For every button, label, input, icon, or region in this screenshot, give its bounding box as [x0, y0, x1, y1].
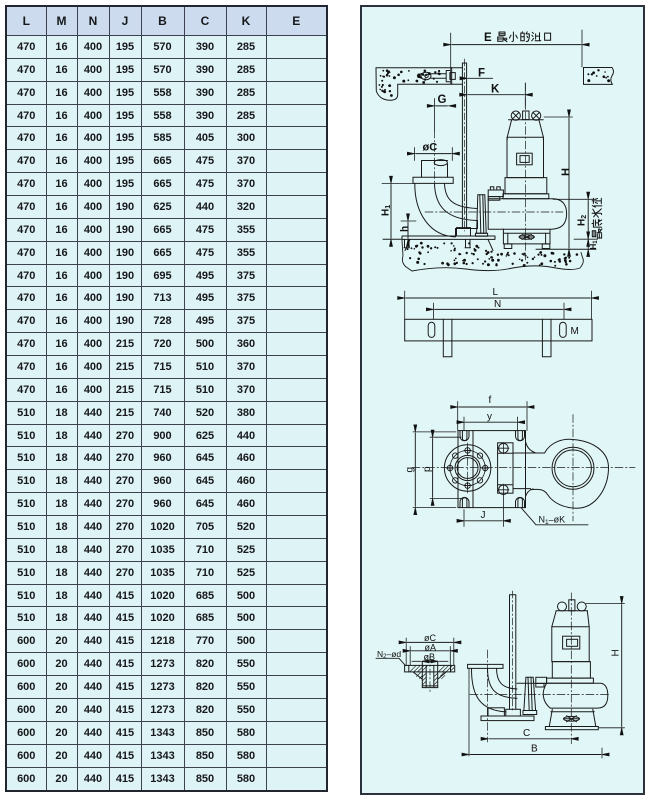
svg-text:p: p — [422, 466, 433, 472]
svg-text:J: J — [481, 510, 486, 521]
svg-text:G: G — [438, 94, 447, 106]
svg-text:M: M — [571, 326, 579, 337]
svg-text:N1–øK: N1–øK — [539, 515, 566, 526]
svg-text:H: H — [560, 168, 572, 176]
svg-text:H: H — [611, 649, 622, 656]
svg-text:øA: øA — [425, 642, 437, 652]
svg-text:f: f — [489, 395, 492, 406]
svg-text:h: h — [400, 226, 411, 232]
svg-text:y: y — [487, 412, 492, 423]
svg-text:L: L — [493, 287, 499, 298]
svg-text:E: E — [484, 32, 492, 44]
svg-text:N: N — [494, 299, 501, 310]
svg-text:N2–ød: N2–ød — [377, 649, 401, 660]
svg-text:F: F — [478, 68, 485, 80]
svg-text:B: B — [531, 744, 538, 755]
svg-text:g: g — [405, 467, 416, 473]
svg-text:K: K — [491, 84, 500, 96]
svg-text:øB: øB — [424, 652, 436, 662]
svg-text:øC: øC — [423, 142, 438, 154]
svg-text:C: C — [523, 728, 530, 739]
